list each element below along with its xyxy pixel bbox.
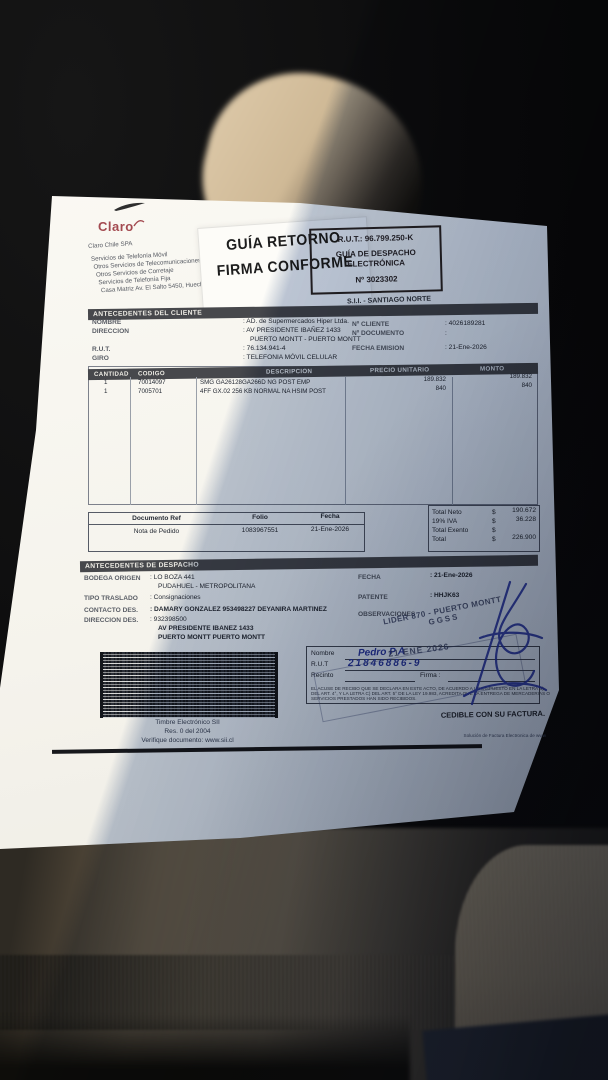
client-number: : 4026189281 [445,320,485,327]
label-fecha-despacho: FECHA [358,574,381,581]
document-number-value: : [445,330,447,337]
total-exento-label: Total Exento [432,527,468,534]
photo-scene: Claro Claro Chile SPA Servicios de Telef… [0,0,608,1080]
sii-pdf417-barcode [100,652,278,718]
client-direccion-2: PUERTO MONTT - PUERTO MONTT [250,336,361,343]
direccion-des-1: : 932398500 [150,616,187,623]
currency-sign: $ [492,509,496,516]
col-cantidad: CANTIDAD [94,371,129,378]
label-tipo-traslado: TIPO TRASLADO [84,595,138,602]
bodega-origen-1: : LO BOZA 441 [150,574,195,581]
doc-ref-fecha: 21-Ene-2026 [295,526,365,533]
col-descripcion: DESCRIPCION [266,368,312,376]
client-nombre: : AD. de Supermercados Hiper Ltda. [243,318,349,325]
pen-signature [450,578,550,710]
contacto-des: : DAMARY GONZALEZ 953498227 DEYANIRA MAR… [150,606,327,613]
doc-ref-documento: Nota de Pedido [88,528,225,535]
table-column-divider [130,377,131,505]
doc-ref-header-fecha: Fecha [295,513,365,520]
doc-ref-header-documento: Documento Ref [88,515,225,522]
doc-ref-header-folio: Folio [225,514,295,521]
iva-value: 36.228 [498,516,536,523]
label-contacto-des: CONTACTO DES. [84,607,138,614]
client-giro: : TELEFONIA MÓVIL CELULAR [243,354,337,361]
currency-sign: $ [492,518,496,525]
label-sig-nombre: Nombre [311,650,334,657]
item-description: 4FF GX.02 256 KB NORMAL NA HSIM POST [200,388,326,395]
document-content: Claro Claro Chile SPA Servicios de Telef… [0,0,608,1080]
label-direccion: DIRECCION [92,328,129,335]
currency-sign: $ [492,527,496,534]
company-name: Claro Chile SPA [88,240,133,250]
label-bodega-origen: BODEGA ORIGEN [84,575,141,582]
dispatch-section-header: ANTECEDENTES DE DESPACHO [80,555,538,572]
label-patente: PATENTE [358,594,388,601]
doc-number: Nº 3023302 [312,273,440,285]
item-qty: 1 [104,379,107,386]
col-precio-unitario: PRECIO UNITARIO [370,366,429,374]
label-n-documento: Nº DOCUMENTO [352,330,404,337]
bodega-origen-2: PUDAHUEL - METROPOLITANA [158,583,255,590]
total-label: Total [432,536,446,543]
direccion-des-3: PUERTO MONTT PUERTO MONTT [158,634,265,641]
item-unit-price: 189.832 [345,376,446,383]
issue-date: : 21-Ene-2026 [445,344,487,351]
pen-swoosh-mark [112,201,148,213]
table-column-divider [452,377,453,505]
label-nombre: NOMBRE [92,319,121,326]
direccion-des-2: AV PRESIDENTE IBANEZ 1433 [158,625,254,632]
table-column-divider [345,377,346,505]
total-value: 226.900 [498,534,536,541]
item-description: SMG GA26128GA266D NG POST EMP [200,379,310,386]
bottom-rule [52,744,482,753]
tipo-traslado: : Consignaciones [150,594,201,601]
col-monto: MONTO [480,365,505,372]
label-n-cliente: Nº CLIENTE [352,321,389,328]
iva-label: 19% IVA [432,518,457,525]
item-unit-price: 840 [345,385,446,392]
claro-logo-accent [133,218,145,228]
label-fecha-emision: FECHA EMISION [352,345,404,352]
claro-logo: Claro [98,219,134,234]
item-qty: 1 [104,388,107,395]
doc-type-line2: ELECTRÓNICA [312,257,440,269]
col-codigo: CODIGO [138,370,165,377]
item-code: 7005701 [138,388,162,395]
rut-box: R.U.T.: 96.799.250-K GUÍA DE DESPACHO EL… [309,225,443,294]
provider-footer: Solución de Factura Electronica de www [438,733,546,738]
client-rut: : 76.134.941-4 [243,345,286,352]
issuer-rut: R.U.T.: 96.799.250-K [311,232,439,244]
label-rut: R.U.T. [92,346,110,353]
total-neto-value: 190.672 [498,507,536,514]
label-sig-rut: R.U.T [311,661,328,668]
item-code: 70014097 [138,379,166,386]
timbre-line3: Verifique documento: www.sii.cl [100,737,275,744]
item-amount: 840 [452,382,532,389]
timbre-line1: Timbre Electrónico SII [100,719,275,726]
doc-ref-header-rule [88,524,365,525]
timbre-line2: Res. 0 del 2004 [100,728,275,735]
table-column-divider [196,377,197,505]
label-giro: GIRO [92,355,109,362]
client-direccion-1: : AV PRESIDENTE IBAÑEZ 1433 [243,327,341,334]
label-direccion-des: DIRECCION DES. [84,617,138,624]
item-amount: 189.832 [452,373,532,380]
currency-sign: $ [492,536,496,543]
cedible-text: CEDIBLE CON SU FACTURA. [420,709,545,720]
total-neto-label: Total Neto [432,509,462,516]
doc-ref-folio: 1083967551 [225,527,295,534]
